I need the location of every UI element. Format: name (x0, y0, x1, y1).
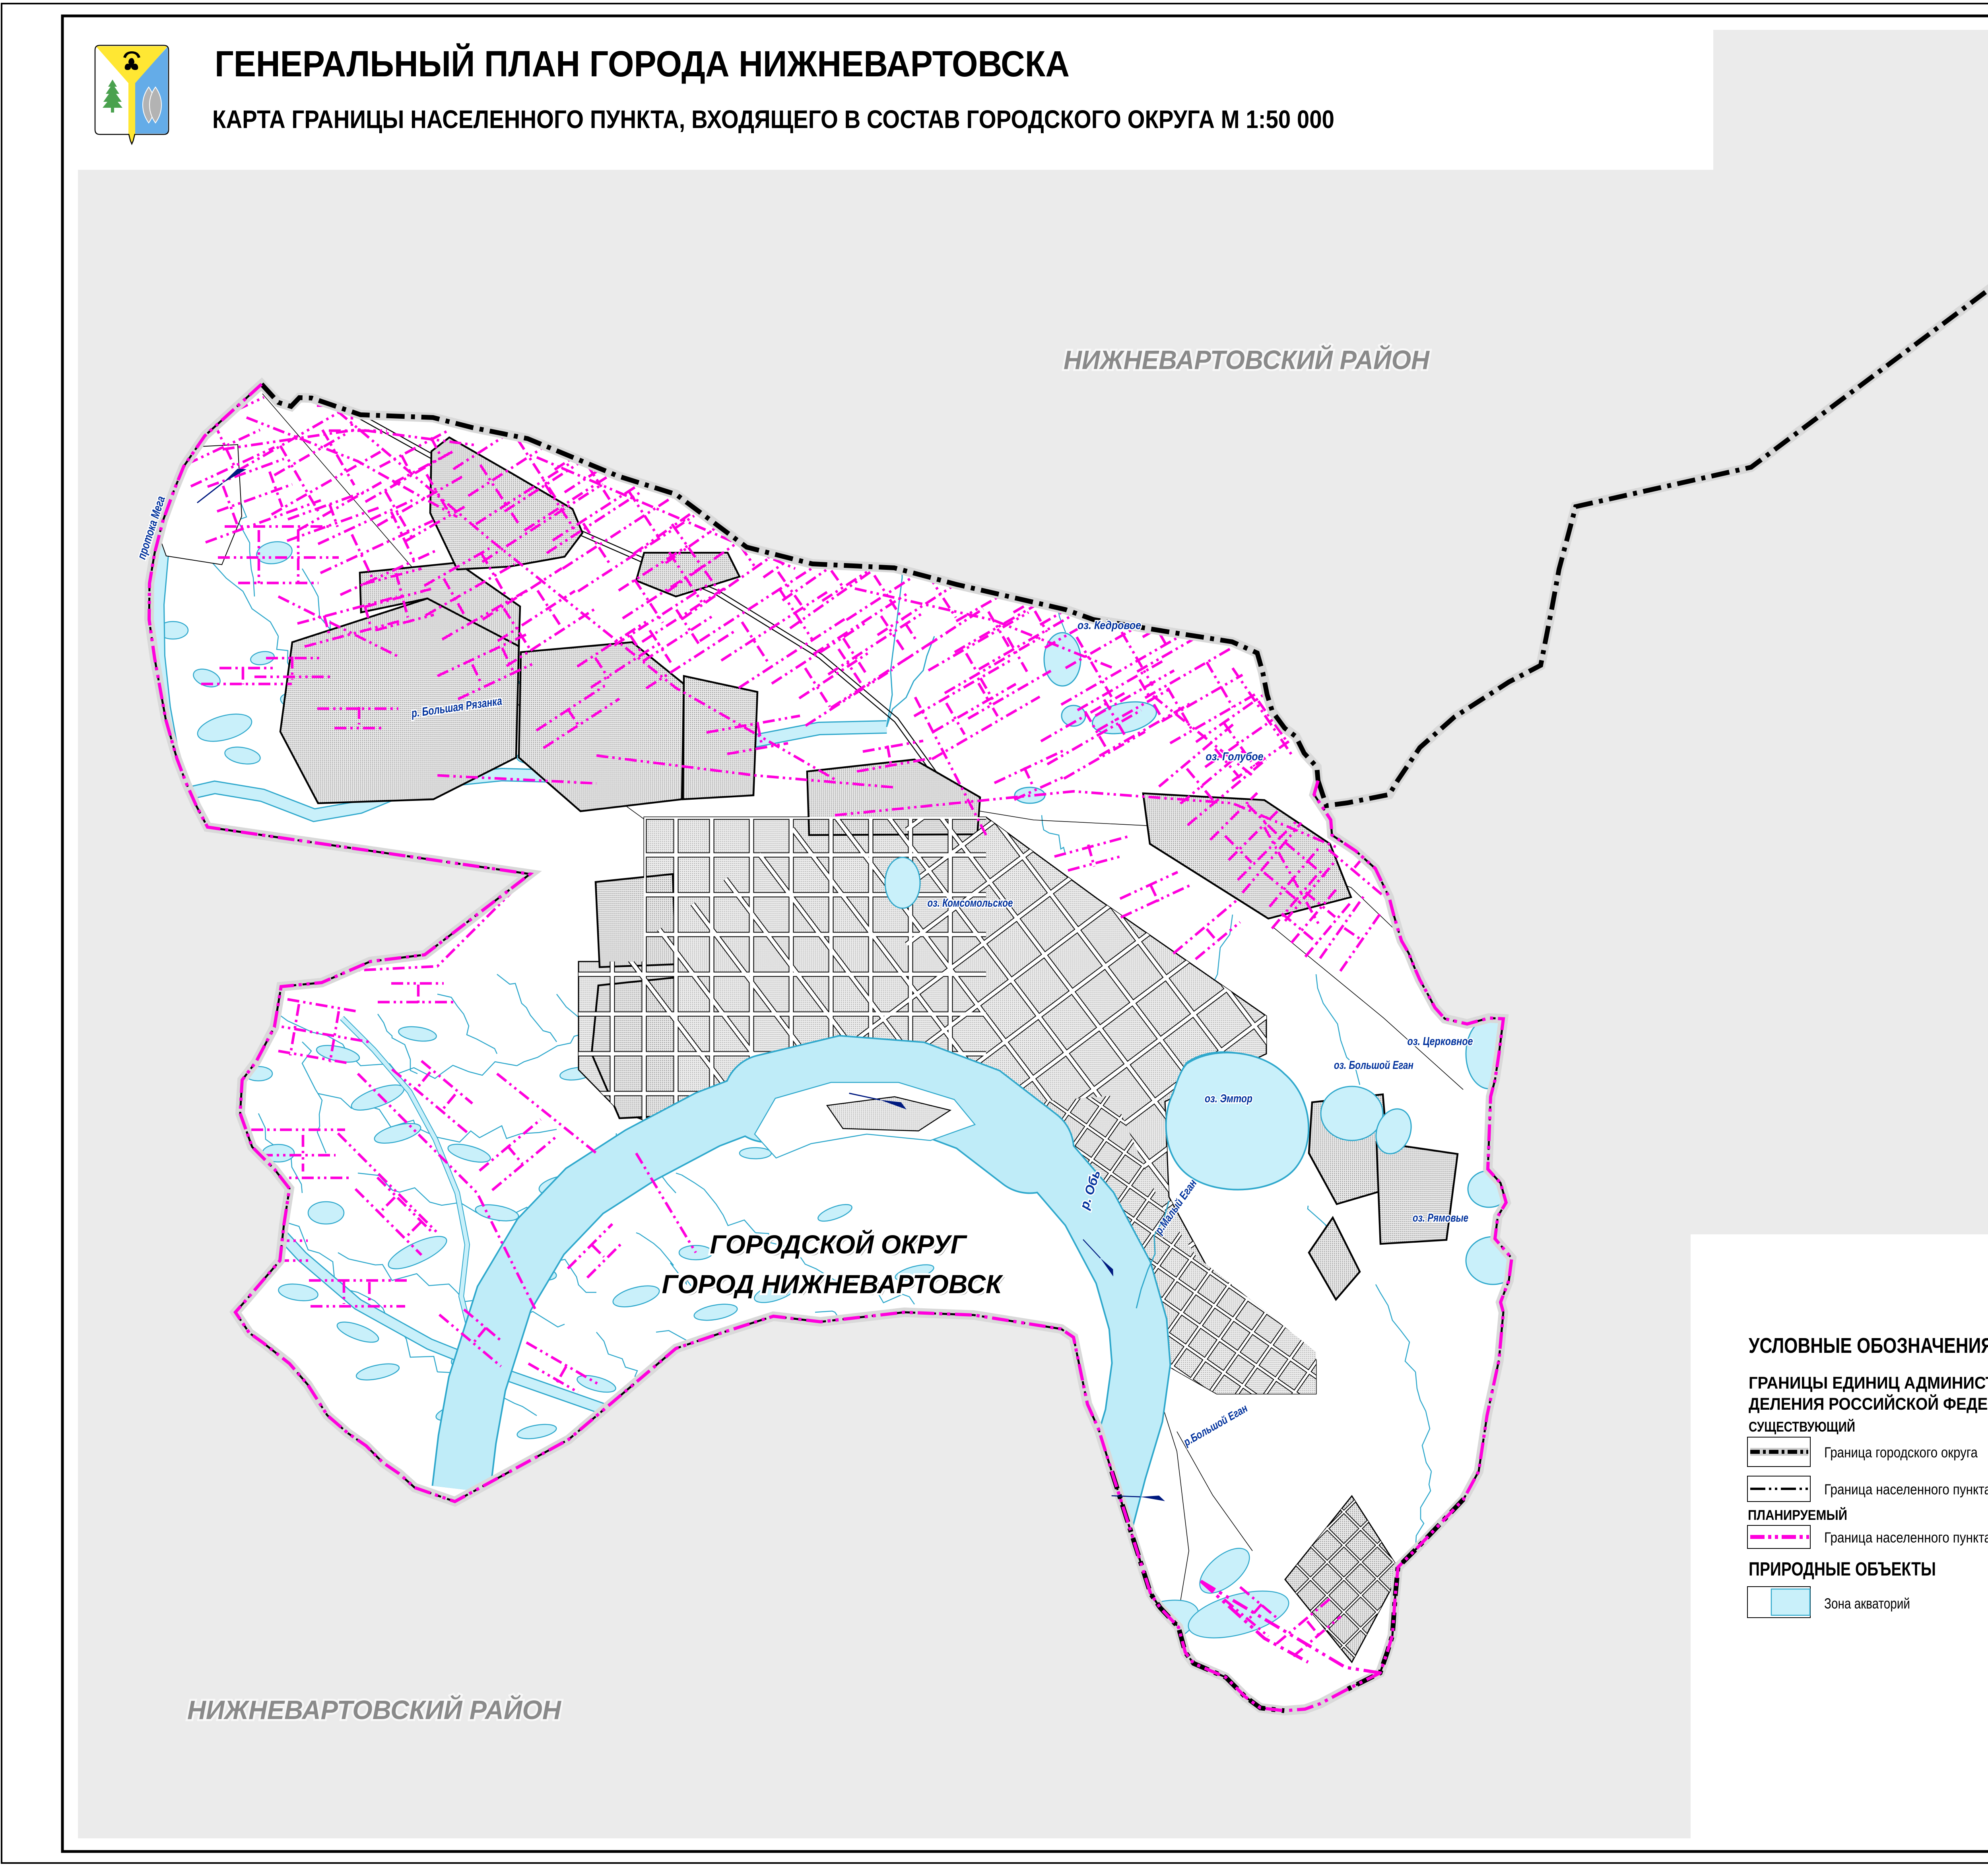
svg-text:Зона акваторий: Зона акваторий (1824, 1595, 1910, 1612)
svg-text:Граница городского округа: Граница городского округа (1824, 1444, 1978, 1461)
svg-text:ГОРОД НИЖНЕВАРТОВСК: ГОРОД НИЖНЕВАРТОВСК (662, 1269, 1004, 1299)
svg-text:УСЛОВНЫЕ ОБОЗНАЧЕНИЯ: УСЛОВНЫЕ ОБОЗНАЧЕНИЯ (1749, 1334, 1988, 1358)
svg-text:оз. Рямовые: оз. Рямовые (1413, 1212, 1468, 1224)
svg-text:ПРИРОДНЫЕ ОБЪЕКТЫ: ПРИРОДНЫЕ ОБЪЕКТЫ (1749, 1559, 1936, 1580)
svg-text:оз. Большой Еган: оз. Большой Еган (1334, 1059, 1413, 1072)
svg-text:Граница населенного пункта: Граница населенного пункта (1824, 1481, 1988, 1498)
svg-text:оз. Голубое: оз. Голубое (1206, 750, 1264, 763)
svg-text:оз. Эмтор: оз. Эмтор (1205, 1092, 1252, 1105)
svg-text:ПЛАНИРУЕМЫЙ: ПЛАНИРУЕМЫЙ (1748, 1507, 1847, 1523)
svg-text:НИЖНЕВАРТОВСКИЙ РАЙОН: НИЖНЕВАРТОВСКИЙ РАЙОН (1064, 345, 1430, 375)
svg-text:ГОРОДСКОЙ ОКРУГ: ГОРОДСКОЙ ОКРУГ (710, 1229, 967, 1259)
svg-text:НИЖНЕВАРТОВСКИЙ РАЙОН: НИЖНЕВАРТОВСКИЙ РАЙОН (187, 1695, 562, 1725)
svg-text:оз. Комсомольское: оз. Комсомольское (928, 897, 1013, 909)
svg-text:Граница населенного пункта: Граница населенного пункта (1824, 1529, 1988, 1546)
svg-text:СУЩЕСТВУЮЩИЙ: СУЩЕСТВУЮЩИЙ (1749, 1419, 1855, 1435)
svg-text:КАРТА ГРАНИЦЫ НАСЕЛЕННОГО ПУНК: КАРТА ГРАНИЦЫ НАСЕЛЕННОГО ПУНКТА, ВХОДЯЩ… (212, 105, 1334, 134)
svg-text:оз. Церковное: оз. Церковное (1408, 1035, 1473, 1048)
svg-text:ДЕЛЕНИЯ РОССИЙСКОЙ ФЕДЕРАЦИИ: ДЕЛЕНИЯ РОССИЙСКОЙ ФЕДЕРАЦИИ (1749, 1394, 1988, 1414)
svg-text:ГРАНИЦЫ ЕДИНИЦ АДМИНИСТРАТИВНО: ГРАНИЦЫ ЕДИНИЦ АДМИНИСТРАТИВНО-ТЕРРИТОРИ… (1749, 1373, 1988, 1393)
svg-text:ГЕНЕРАЛЬНЫЙ ПЛАН ГОРОДА НИЖНЕВ: ГЕНЕРАЛЬНЫЙ ПЛАН ГОРОДА НИЖНЕВАРТОВСКА (215, 43, 1070, 84)
svg-text:оз. Кедровое: оз. Кедровое (1077, 619, 1141, 632)
